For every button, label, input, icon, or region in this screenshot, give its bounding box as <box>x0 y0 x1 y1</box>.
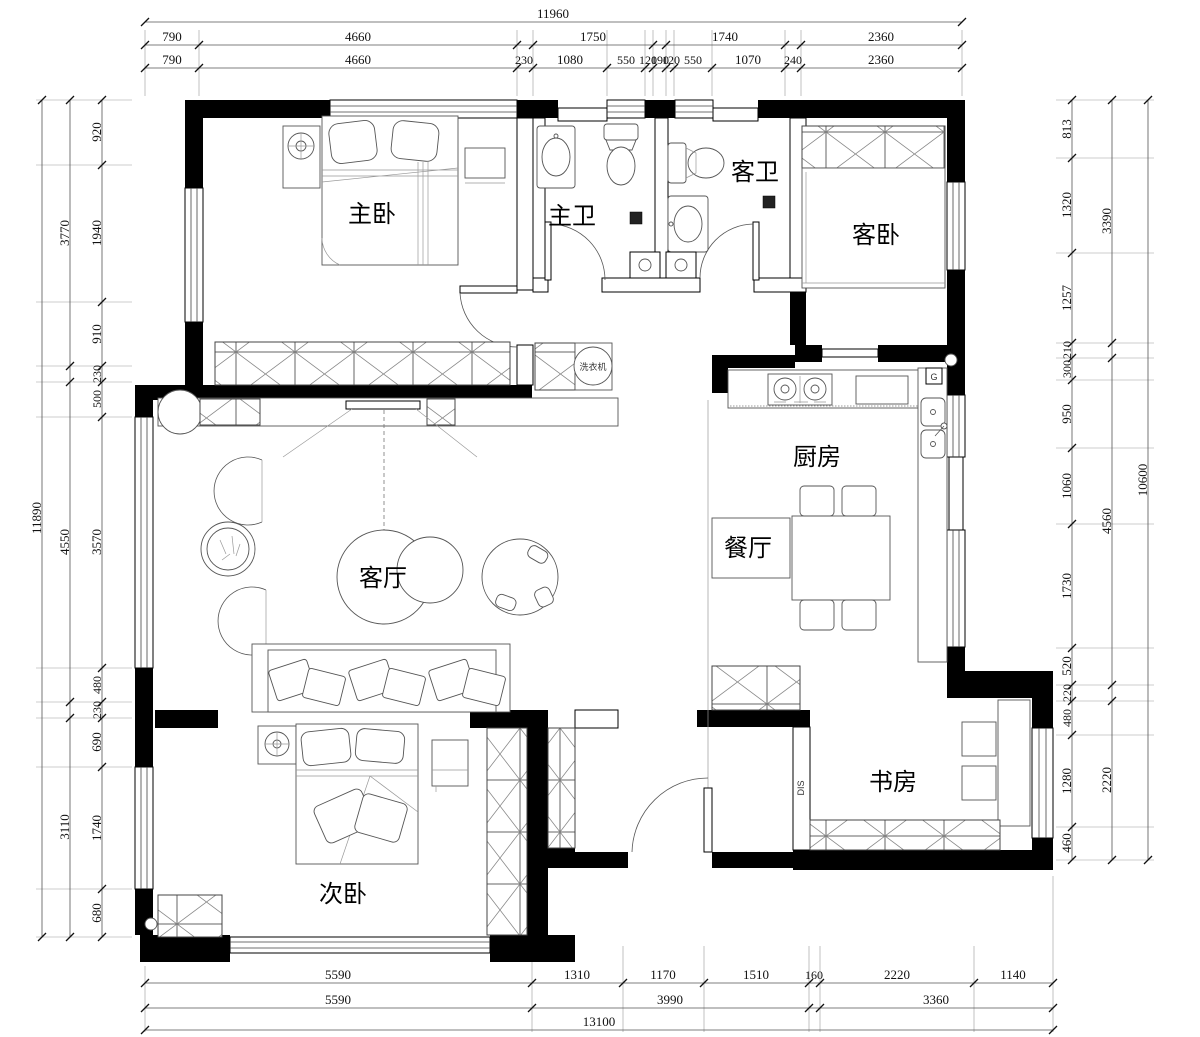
washer-label: 洗衣机 <box>579 361 606 372</box>
round-stool <box>158 390 202 434</box>
room-label-guest-bath: 客卫 <box>731 159 779 186</box>
dim: 3770 <box>57 220 72 246</box>
dim: 1080 <box>557 52 583 67</box>
room-label-master-bath: 主卫 <box>548 203 596 230</box>
toilet-guest-bath <box>668 143 724 183</box>
dim: 1170 <box>650 967 676 982</box>
dim: 230 <box>90 365 104 383</box>
dim: 813 <box>1059 119 1074 139</box>
desk <box>998 700 1030 826</box>
dim: 2360 <box>868 52 894 67</box>
dim: 2220 <box>884 967 910 982</box>
dim: 1510 <box>743 967 769 982</box>
dim: 1060 <box>1059 473 1074 499</box>
bookcase <box>810 820 1000 850</box>
dim-left-total: 11890 <box>29 502 44 534</box>
toilet-master-bath <box>604 124 638 185</box>
dim: 1310 <box>564 967 590 982</box>
dresser <box>432 740 468 792</box>
dim: 520 <box>1059 656 1074 676</box>
dim: 5590 <box>325 992 351 1007</box>
living-room-furniture <box>158 390 618 712</box>
dimensions-left: 920 1940 910 230 500 3570 480 230 690 17… <box>29 96 132 941</box>
sink-guest-bath <box>668 196 708 252</box>
door-master-bath <box>545 222 605 280</box>
nightstand <box>258 726 296 764</box>
dim: 4660 <box>345 29 371 44</box>
master-bedroom-furniture <box>215 116 510 385</box>
dim: 790 <box>162 29 182 44</box>
sofa <box>252 644 510 712</box>
dim: 3390 <box>1099 208 1114 234</box>
window-master-left <box>185 188 203 322</box>
dim: 1257 <box>1059 285 1074 312</box>
chair <box>962 722 996 756</box>
window-bedroom2-bottom <box>230 937 490 953</box>
floor-drain <box>630 212 642 224</box>
dim: 1730 <box>1059 573 1074 599</box>
dim: 2360 <box>868 29 894 44</box>
dim: 2220 <box>1099 767 1114 793</box>
dim: 1070 <box>735 52 761 67</box>
dim: 240 <box>784 53 802 67</box>
dining-table <box>792 516 890 600</box>
dim: 550 <box>617 53 635 67</box>
plant <box>201 522 255 576</box>
stove <box>768 374 832 405</box>
dim: 3360 <box>923 992 949 1007</box>
dis-label: DIS <box>796 780 806 795</box>
dim: 920 <box>89 122 104 142</box>
dim: 1740 <box>712 29 738 44</box>
room-label-living-room: 客厅 <box>359 565 407 592</box>
dim: 210 <box>1060 341 1074 359</box>
dim-top-total: 11960 <box>537 6 569 21</box>
hall-washer: 洗衣机 <box>535 343 612 390</box>
room-label-dining-room: 餐厅 <box>724 535 772 562</box>
dim: 4550 <box>57 529 72 555</box>
dim: 1940 <box>89 220 104 246</box>
guest-bedroom-furniture <box>802 126 945 288</box>
dim: 910 <box>89 324 104 344</box>
dim: 4560 <box>1099 508 1114 534</box>
bed-master <box>322 116 458 265</box>
dim: 460 <box>1059 833 1074 853</box>
gas-meter-label: G <box>930 372 937 382</box>
floor-plan-page: 11960 790 4660 1750 1740 2360 790 4660 2… <box>0 0 1200 1037</box>
dim: 500 <box>90 390 104 408</box>
door-master-bedroom <box>460 286 517 347</box>
door-guest-bath <box>700 222 759 280</box>
bench <box>465 148 505 183</box>
dim: 3110 <box>57 814 72 840</box>
counter-box <box>856 376 908 404</box>
corner-cabinet <box>145 895 222 937</box>
window-bath2-top <box>675 100 713 118</box>
dim: 300 <box>1060 360 1074 378</box>
window-living-left <box>135 417 153 668</box>
dim: 1320 <box>1059 192 1074 218</box>
window-study-right <box>1032 728 1053 838</box>
drain-box <box>666 252 696 278</box>
dim: 1140 <box>1000 967 1026 982</box>
wardrobe-guest <box>802 126 945 168</box>
dim: 230 <box>90 701 104 719</box>
chair <box>842 600 876 630</box>
bed-second <box>296 724 418 864</box>
wardrobe-master <box>215 342 510 385</box>
dim: 550 <box>684 53 702 67</box>
dimensions-right: 813 1320 1257 210 300 950 1060 1730 520 … <box>1056 96 1154 864</box>
dim: 690 <box>89 732 104 752</box>
nightstand <box>283 126 320 188</box>
dim: 1750 <box>580 29 606 44</box>
window-bath1-top <box>607 100 645 118</box>
door-entry <box>632 778 712 852</box>
room-label-study: 书房 <box>869 769 917 796</box>
dim: 1280 <box>1059 768 1074 794</box>
dim: 4660 <box>345 52 371 67</box>
window-guestbed-right <box>947 182 965 270</box>
dim: 3990 <box>657 992 683 1007</box>
dim: 120 <box>662 53 680 67</box>
window-kitchen-right-1 <box>947 395 965 457</box>
room-label-guest-bedroom: 客卧 <box>852 222 900 249</box>
dim: 680 <box>89 903 104 923</box>
entry-cabinet <box>712 666 800 710</box>
dim-right-total: 10600 <box>1135 464 1150 497</box>
window-kitchen-right-2 <box>947 530 965 647</box>
swivel-chair <box>482 539 558 615</box>
sink-master-bath <box>537 126 575 188</box>
dimensions-bottom: 5590 1310 1170 1510 160 2220 1140 5590 3… <box>141 876 1057 1034</box>
drain-box <box>630 252 660 278</box>
dim: 1740 <box>89 815 104 841</box>
dim: 160 <box>805 968 823 982</box>
hall-closet <box>548 728 575 848</box>
dim: 3570 <box>89 529 104 555</box>
chair <box>800 600 834 630</box>
window-master-top <box>330 100 517 118</box>
room-label-second-bedroom: 次卧 <box>319 881 367 908</box>
window-bedroom2-left <box>135 767 153 889</box>
dim: 230 <box>515 53 533 67</box>
room-label-master-bedroom: 主卧 <box>348 201 396 228</box>
master-bath-fixtures <box>537 124 660 278</box>
dim: 790 <box>162 52 182 67</box>
floor-plan-drawing: 11960 790 4660 1750 1740 2360 790 4660 2… <box>0 0 1200 1037</box>
dim: 480 <box>1060 709 1074 727</box>
chair <box>842 486 876 516</box>
floor-drain <box>763 196 775 208</box>
armchair <box>214 457 262 525</box>
chair <box>962 766 996 800</box>
dim: 5590 <box>325 967 351 982</box>
dim: 480 <box>90 676 104 694</box>
dim: 220 <box>1060 684 1074 702</box>
dim-bottom-total: 13100 <box>583 1014 616 1029</box>
room-label-kitchen: 厨房 <box>793 444 841 471</box>
dim: 950 <box>1059 404 1074 424</box>
chair <box>800 486 834 516</box>
dimensions-top: 11960 790 4660 1750 1740 2360 790 4660 2… <box>141 6 966 96</box>
wardrobe-second <box>487 728 527 935</box>
